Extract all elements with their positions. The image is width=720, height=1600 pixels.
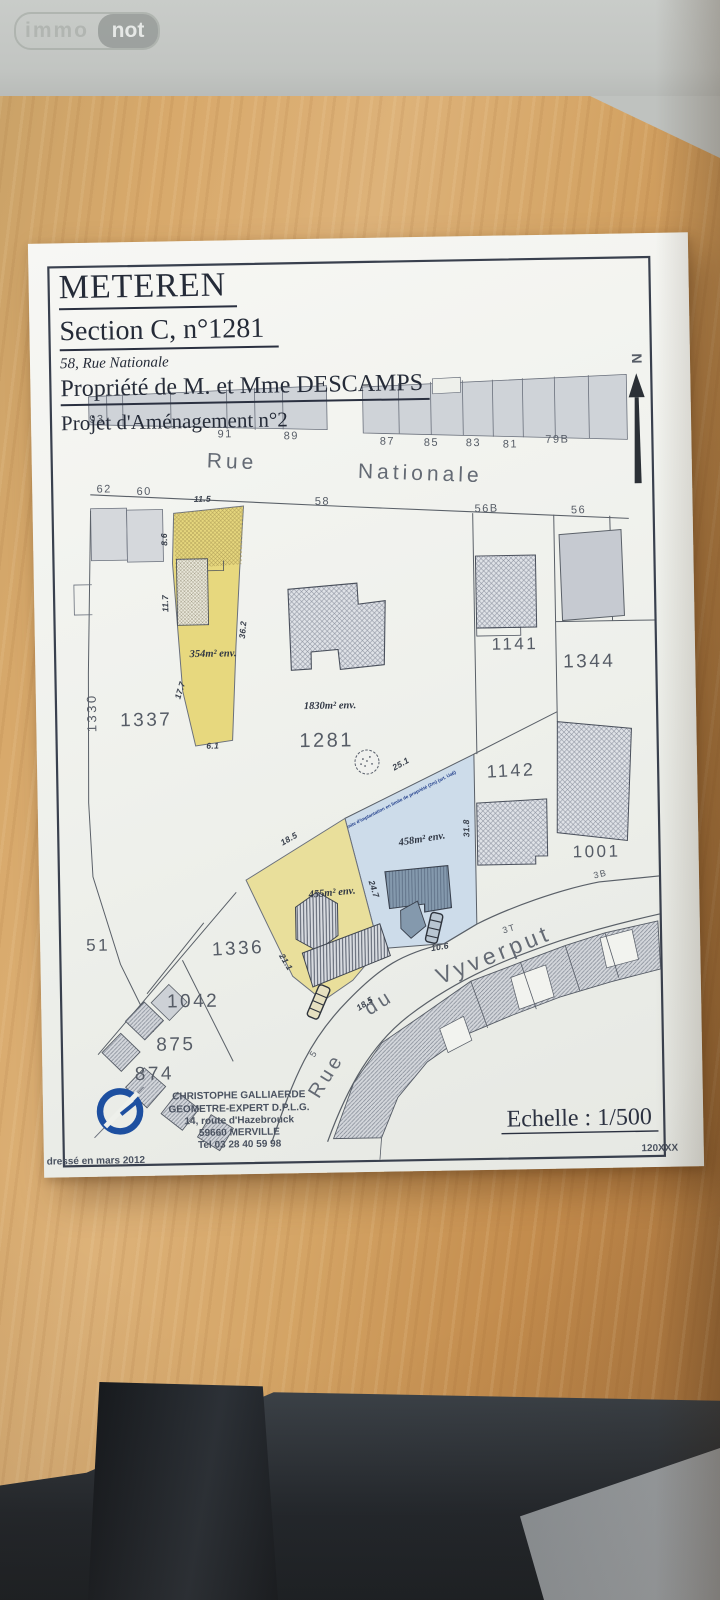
surveyor-block: CHRISTOPHE GALLIAERDE GEOMETRE-EXPERT D.… (28, 1084, 311, 1168)
measure-25-1: 25.1 (390, 755, 411, 773)
parcel-label-1142: 1142 (486, 759, 536, 782)
house-number-62: 62 (96, 483, 111, 495)
surveyor-logo (94, 1087, 145, 1138)
survey-plan-document: N 93 91 89 87 85 83 81 79B (28, 232, 704, 1177)
measure-18-5-a: 18.5 (279, 830, 299, 848)
house-number-58: 58 (315, 496, 330, 508)
measure-31-8: 31.8 (461, 819, 471, 837)
parcel-label-1042: 1042 (167, 991, 220, 1013)
parcel-label-875: 875 (156, 1034, 196, 1056)
plan-date-note: Plan dressé en mars 2012 (28, 1155, 146, 1168)
north-arrowhead (628, 373, 644, 397)
surveyor-name: CHRISTOPHE GALLIAERDE (172, 1089, 306, 1102)
south-house-numbers: 62 60 58 56B 56 (96, 475, 586, 525)
house-number-56: 56 (571, 504, 586, 516)
house-number-3b: 3B (592, 868, 608, 881)
house-number-5: 5 (308, 1048, 320, 1059)
house-number-56b: 56B (474, 503, 498, 515)
house-number-83: 83 (466, 437, 481, 449)
north-letter: N (629, 353, 645, 365)
building-hatched (176, 559, 208, 626)
person-legs (88, 1382, 278, 1600)
photo-scene: immo not (0, 0, 720, 1600)
building-1142 (477, 799, 548, 865)
house-number-79b: 79B (545, 433, 569, 445)
street-name-rue2: Rue (304, 1049, 348, 1102)
parcel-label-51: 51 (86, 936, 110, 955)
scale-block: Echelle : 1/500 120XXX (501, 1104, 679, 1157)
title-section: Section C, n°1281 (59, 312, 278, 351)
house-number-60: 60 (137, 486, 152, 498)
title-address: 58, Rue Nationale (60, 350, 429, 373)
title-block: METEREN Section C, n°1281 58, Rue Nation… (58, 263, 430, 436)
surveyor-phone: Tel 03 28 40 59 98 (198, 1139, 282, 1151)
parcel-354-yellow-strip (172, 506, 248, 746)
title-commune: METEREN (58, 266, 236, 310)
street-name-nationale: Nationale (358, 460, 483, 487)
parcel-label-1336: 1336 (211, 937, 264, 961)
parcel-label-1344: 1344 (563, 651, 616, 673)
parcel-label-1141: 1141 (492, 634, 539, 654)
plan-reference: 120XXX (641, 1143, 678, 1155)
area-354: 354m² env. (188, 648, 236, 660)
house-number-81: 81 (503, 438, 518, 450)
title-owner: Propriété de M. et Mme DESCAMPS (60, 370, 429, 406)
measure-6-1: 6.1 (206, 741, 219, 751)
north-shaft (633, 397, 641, 483)
building-1344 (559, 529, 625, 620)
street-name-rue: Rue (206, 449, 257, 474)
parcel-label-1001: 1001 (573, 842, 621, 862)
measure-36-2: 36.2 (237, 621, 249, 640)
measure-8-6: 8.6 (159, 533, 169, 546)
north-arrow: N (628, 353, 647, 483)
parcel-label-874: 874 (135, 1063, 175, 1085)
tree-symbol (355, 750, 379, 774)
street-south-edge (90, 485, 628, 527)
measure-11-5: 11.5 (194, 494, 211, 504)
immonot-not-badge: not (98, 14, 158, 48)
scale-label: Echelle : 1/500 (506, 1104, 652, 1133)
house-number-87: 87 (380, 435, 395, 447)
building-1001 (555, 720, 633, 841)
surveyor-address1: 14, route d'Hazebrouck (184, 1114, 294, 1127)
measure-11-7: 11.7 (160, 594, 170, 612)
house-number-85: 85 (424, 437, 439, 449)
building-main-house (288, 583, 386, 671)
area-1830: 1830m² env. (304, 700, 357, 712)
surveyor-address2: 59660 MERVILLE (199, 1127, 280, 1139)
immonot-watermark: immo not (14, 12, 160, 50)
building-1141 (475, 555, 536, 628)
parcel-label-1281: 1281 (299, 729, 354, 752)
immonot-immo-text: immo (16, 19, 98, 43)
right-parcels (470, 510, 659, 865)
parcel-label-1330: 1330 (84, 693, 100, 732)
parcel-label-1337: 1337 (120, 709, 173, 731)
